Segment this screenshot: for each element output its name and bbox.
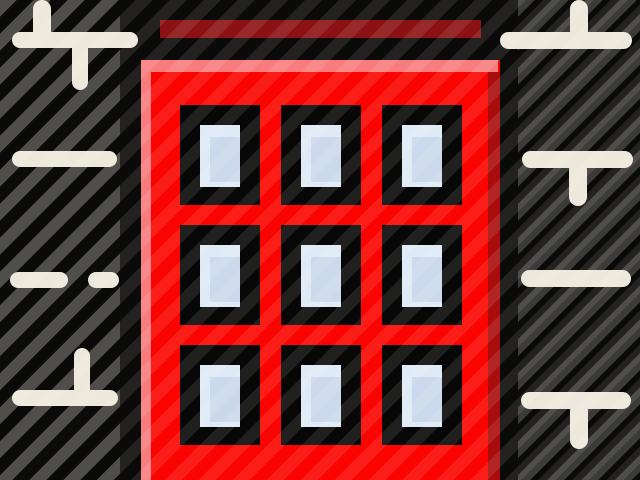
decor-line-upper-right-drop: [569, 160, 587, 206]
decor-line-mid-left-bar: [12, 151, 117, 167]
building-right-shade: [488, 72, 500, 480]
window-frame: [281, 225, 361, 325]
window-frame: [382, 105, 462, 205]
window-frame: [180, 345, 260, 445]
decor-line-left-dash-long: [10, 272, 68, 288]
window-pane: [402, 125, 442, 187]
decor-line-mid-right-bar: [521, 270, 631, 287]
window-frame: [180, 105, 260, 205]
window-frame: [382, 225, 462, 325]
window-pane: [301, 125, 341, 187]
window-frame: [281, 345, 361, 445]
window-pane-shade: [311, 377, 341, 422]
roof-slab: [160, 20, 481, 38]
window-frame: [382, 345, 462, 445]
window-pane-shade: [210, 137, 240, 182]
window-pane: [200, 245, 240, 307]
window-pane-shade: [412, 377, 442, 422]
decor-line-bottom-left-bar: [12, 390, 118, 406]
window-pane-shade: [210, 377, 240, 422]
decor-line-bottom-right-drop: [570, 402, 588, 449]
window-pane-shade: [311, 257, 341, 302]
building-icon: [141, 60, 500, 480]
window-pane: [301, 245, 341, 307]
window-pane: [402, 365, 442, 427]
window-pane: [200, 125, 240, 187]
building-top-highlight: [141, 60, 498, 72]
building-left-highlight: [141, 60, 151, 480]
window-pane-shade: [412, 137, 442, 182]
striped-background-left-panel: [0, 0, 120, 480]
window-pane-shade: [210, 257, 240, 302]
decor-line-top-left-drop: [72, 40, 88, 90]
window-pane-shade: [412, 257, 442, 302]
decor-line-left-dash-short: [88, 272, 119, 288]
window-pane: [402, 245, 442, 307]
window-frame: [281, 105, 361, 205]
decor-line-top-right-bar: [500, 32, 632, 49]
window-grid: [180, 105, 462, 445]
window-pane-shade: [311, 137, 341, 182]
window-frame: [180, 225, 260, 325]
icon-scene: [0, 0, 640, 480]
window-pane: [200, 365, 240, 427]
window-pane: [301, 365, 341, 427]
